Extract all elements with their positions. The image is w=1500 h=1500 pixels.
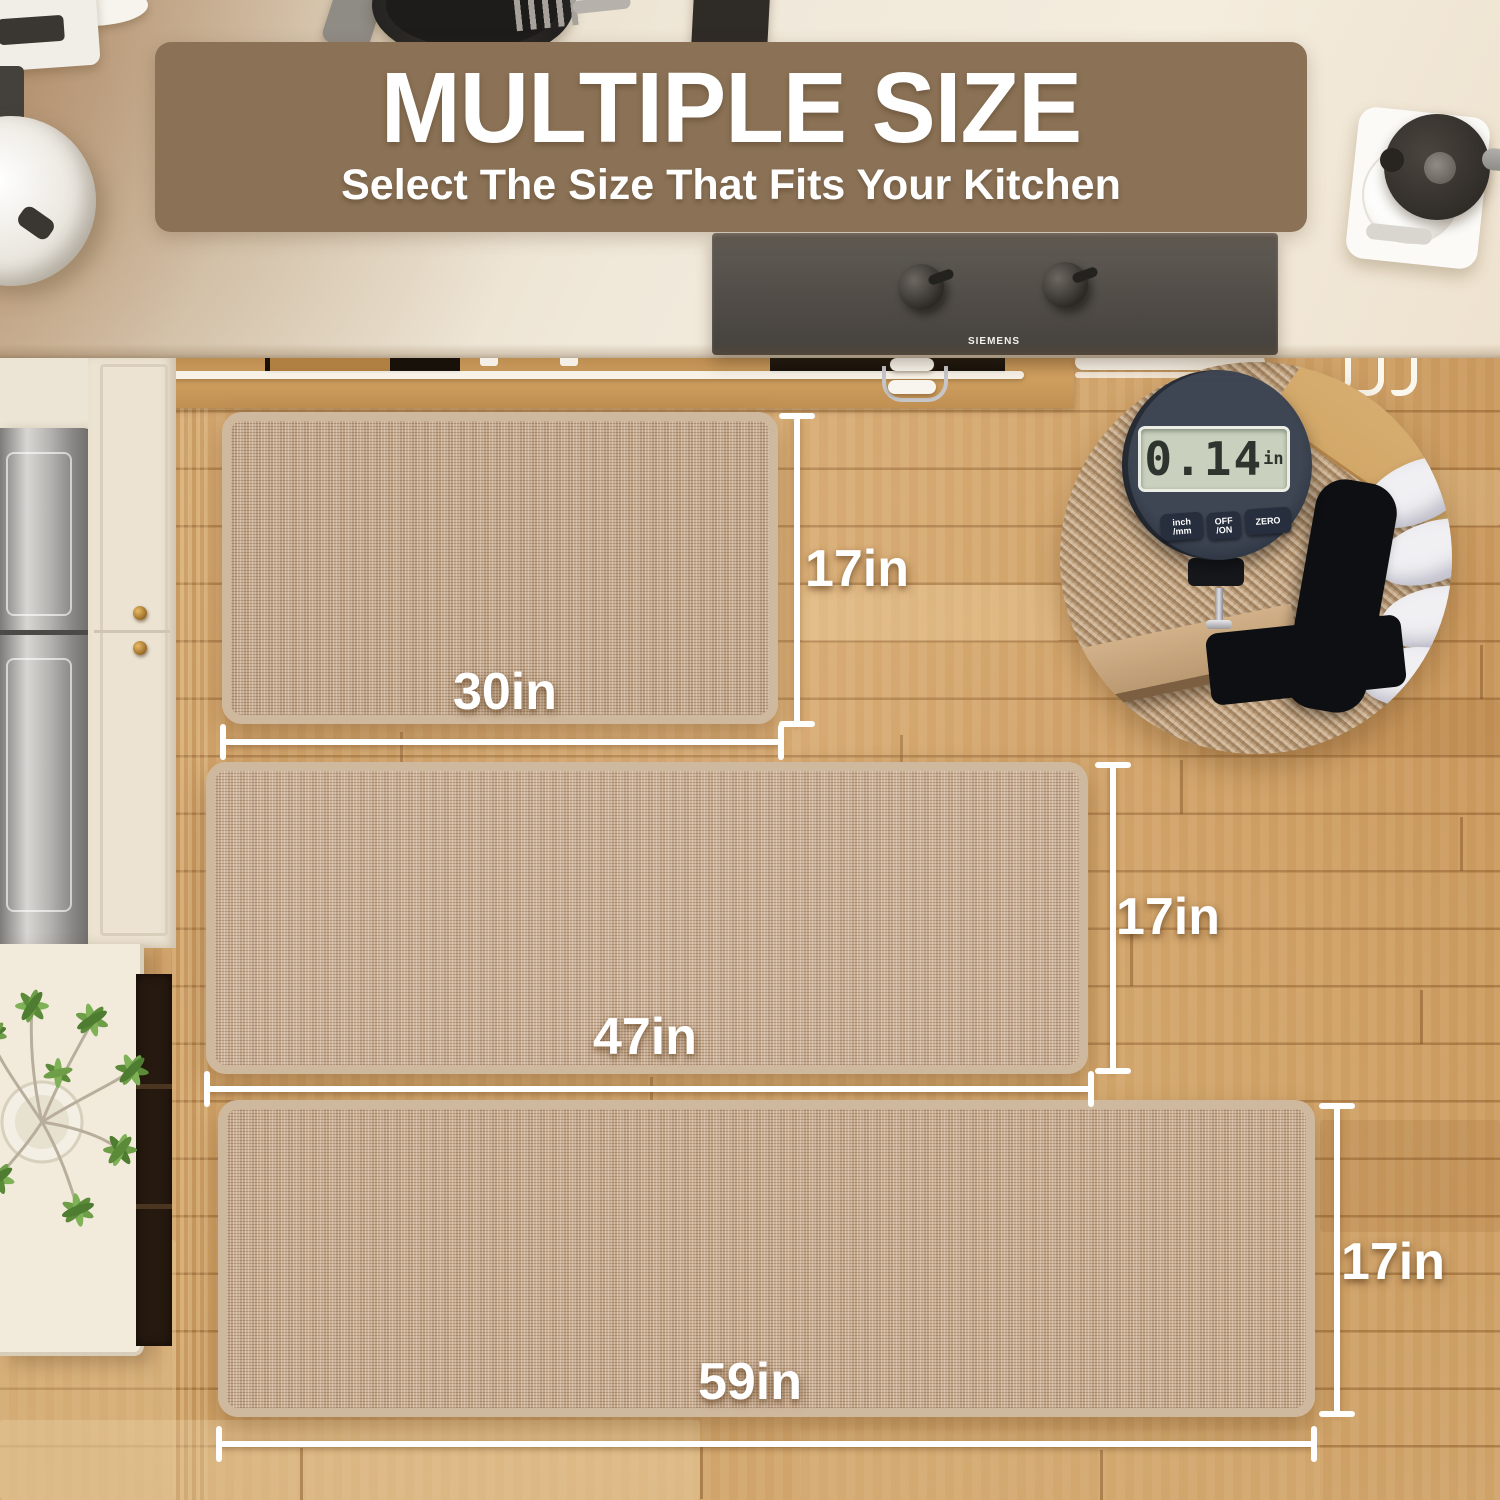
dimension-line-width-mat2 bbox=[206, 1086, 1092, 1092]
lower-cabinet-front bbox=[172, 354, 1074, 408]
kitchen-product-scene: 30in 17in 47in 17in 59in 17in 0.14 in in… bbox=[0, 0, 1500, 1500]
hood-knob bbox=[898, 264, 944, 310]
thickness-gauge-inset: 0.14 in inch /mm OFF /ON ZERO bbox=[1060, 362, 1452, 754]
headline-banner: MULTIPLE SIZE Select The Size That Fits … bbox=[155, 42, 1307, 232]
banner-subtitle: Select The Size That Fits Your Kitchen bbox=[155, 162, 1307, 208]
kettle-spout bbox=[1380, 148, 1404, 172]
fork bbox=[513, 0, 580, 31]
dimension-line-height-mat3 bbox=[1334, 1105, 1340, 1415]
white-kettle-pot bbox=[0, 116, 96, 286]
small-appliance bbox=[0, 0, 101, 72]
gauge-button-inch-mm: inch /mm bbox=[1160, 512, 1204, 542]
gauge-clamp-nut bbox=[1188, 558, 1244, 586]
gauge-reading-unit: in bbox=[1263, 449, 1283, 469]
gauge-anvil-foot bbox=[1206, 620, 1232, 629]
gauge-lcd: 0.14 in bbox=[1138, 426, 1290, 492]
gauge-button-off-on: OFF /ON bbox=[1206, 511, 1242, 540]
mat1-height-label: 17in bbox=[805, 539, 909, 599]
mat3-height-label: 17in bbox=[1341, 1232, 1445, 1292]
gauge-button-label: ZERO bbox=[1255, 516, 1281, 527]
dimension-line-width-mat3 bbox=[218, 1441, 1315, 1447]
hood-knob bbox=[1042, 262, 1088, 308]
cabinet-wood-slat bbox=[270, 357, 390, 371]
gauge-spindle bbox=[1215, 588, 1223, 624]
gauge-reading: 0.14 bbox=[1144, 436, 1263, 482]
cabinet-door-seam bbox=[94, 630, 170, 633]
mat3-width-label: 59in bbox=[698, 1352, 802, 1412]
digital-gauge-body: 0.14 in inch /mm OFF /ON ZERO bbox=[1122, 370, 1312, 560]
gauge-button-zero: ZERO bbox=[1244, 506, 1292, 535]
gauge-button-label: /ON bbox=[1216, 525, 1233, 535]
gauge-lcd-screen: 0.14 in bbox=[1141, 429, 1287, 489]
cabinet-knob bbox=[133, 606, 147, 620]
mat2-width-label: 47in bbox=[593, 1007, 697, 1067]
range-hood: SIEMENS bbox=[712, 233, 1278, 355]
tall-cabinet bbox=[88, 354, 176, 948]
oven-panel bbox=[6, 452, 72, 616]
dimension-line-width-mat1 bbox=[222, 739, 782, 745]
gauge-button-label: /mm bbox=[1173, 526, 1192, 536]
mat1-width-label: 30in bbox=[453, 662, 557, 722]
oven-seam bbox=[0, 630, 90, 635]
kettle-lid-hub bbox=[1424, 152, 1456, 184]
stainless-oven bbox=[0, 428, 93, 948]
oven-panel bbox=[6, 658, 72, 912]
dimension-line-height-mat1 bbox=[794, 415, 800, 725]
drawer-handle-grip bbox=[890, 358, 934, 371]
mat2-height-label: 17in bbox=[1116, 887, 1220, 947]
cabinet-knob bbox=[133, 641, 147, 655]
drawer-handle-grip bbox=[888, 380, 936, 394]
banner-title: MULTIPLE SIZE bbox=[178, 56, 1284, 160]
counter-edge-shadow bbox=[0, 344, 1500, 358]
potted-plant bbox=[0, 978, 180, 1288]
